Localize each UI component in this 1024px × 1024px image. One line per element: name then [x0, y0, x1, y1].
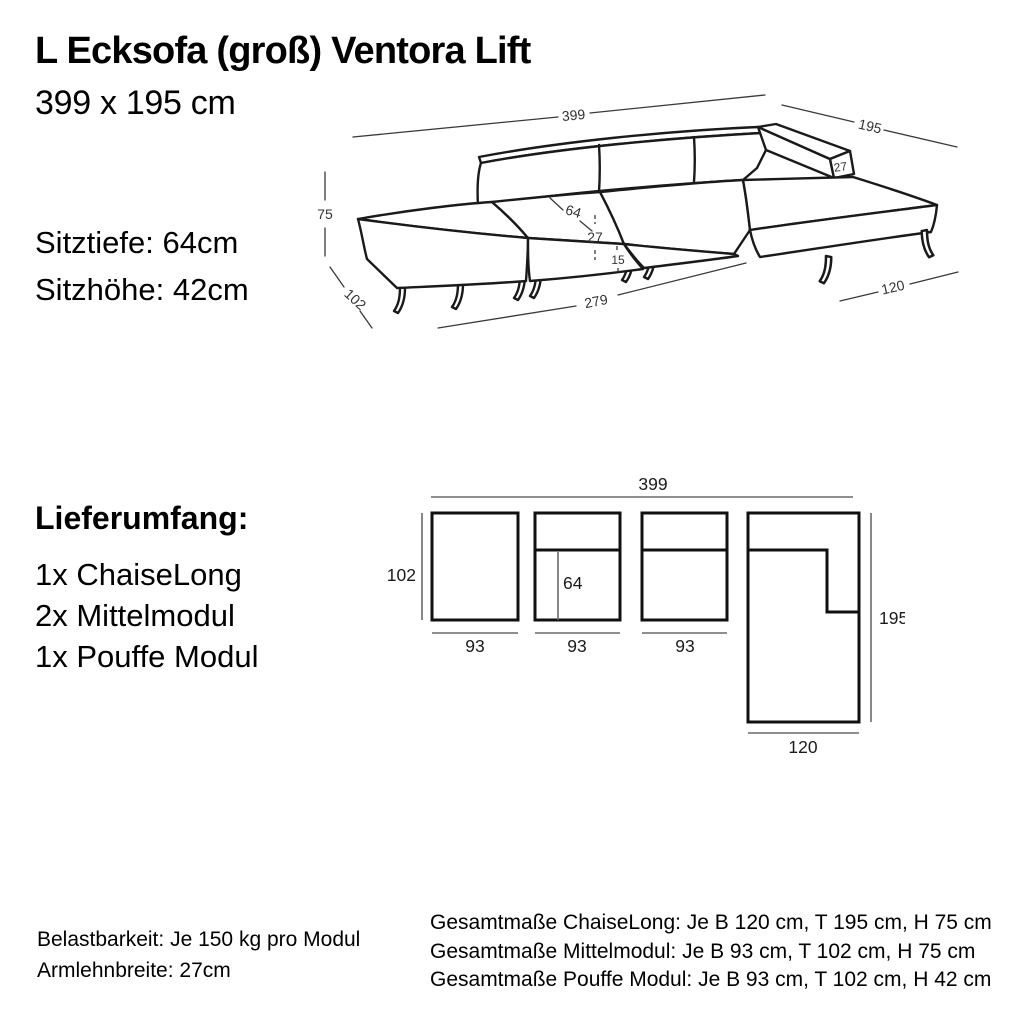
backrest-divider-line: [599, 145, 600, 192]
sofa-leg: [820, 256, 832, 283]
plan-dim-module-width-label: 93: [567, 636, 586, 656]
page-title: L Ecksofa (groß) Ventora Lift: [35, 30, 531, 74]
footer-load-notes: Belastbarkeit: Je 150 kg pro Modul Armle…: [37, 924, 360, 986]
sofa-leg: [394, 287, 405, 313]
footer-dim-pouffe: Gesamtmaße Pouffe Modul: Je B 93 cm, T 1…: [430, 966, 992, 995]
footer-load-capacity: Belastbarkeit: Je 150 kg pro Modul: [37, 924, 360, 955]
backrest-divider-line: [694, 137, 695, 182]
plan-module-mittel-2: [642, 513, 727, 620]
dim-modules-width-label: 279: [583, 291, 609, 311]
dim-leg-height-label: 15: [611, 253, 625, 267]
dim-module-depth-label: 102: [341, 286, 369, 314]
dim-total-width-label: 399: [561, 106, 586, 124]
delivery-item: 2x Mittelmodul: [35, 595, 258, 636]
plan-dim-module-width-label: 93: [465, 636, 484, 656]
delivery-heading: Lieferumfang:: [35, 500, 258, 537]
plan-dim-module-depth-label: 102: [387, 565, 416, 585]
delivery-list: 1x ChaiseLong 2x Mittelmodul 1x Pouffe M…: [35, 554, 258, 677]
plan-module-chaise: [748, 513, 859, 722]
spec-seat-height: Sitzhöhe: 42cm: [35, 266, 249, 313]
plan-module-mittel-1: [535, 513, 620, 620]
dim-chaise-width-label: 120: [880, 277, 907, 298]
spec-seat-depth: Sitztiefe: 64cm: [35, 219, 249, 266]
dim-armrest-width-label: 27: [833, 159, 848, 175]
delivery-contents: Lieferumfang: 1x ChaiseLong 2x Mittelmod…: [35, 500, 258, 677]
plan-seat-depth-label: 64: [563, 573, 583, 593]
footer-armrest-width: Armlehnbreite: 27cm: [37, 955, 360, 986]
plan-module-chaise-inner-line: [748, 550, 859, 612]
sofa-isometric-drawing: 27 399 195 75 102 64: [310, 88, 975, 345]
dim-seat-height-label: 27: [587, 229, 603, 245]
dim-height-label: 75: [317, 206, 333, 222]
sofa-leg: [922, 230, 934, 257]
seat-specs: Sitztiefe: 64cm Sitzhöhe: 42cm: [35, 219, 249, 313]
footer-dim-chaiselong: Gesamtmaße ChaiseLong: Je B 120 cm, T 19…: [430, 909, 992, 938]
dim-total-depth-label: 195: [857, 116, 884, 137]
plan-dim-chaise-width-label: 120: [788, 737, 817, 757]
delivery-item: 1x ChaiseLong: [35, 554, 258, 595]
plan-dim-total-width-label: 399: [638, 474, 667, 494]
plan-dim-module-width-label: 93: [675, 636, 694, 656]
plan-dim-chaise-depth-label: 195: [879, 608, 905, 628]
plan-module-pouffe: [432, 513, 518, 620]
footer-dim-mittelmodul: Gesamtmaße Mittelmodul: Je B 93 cm, T 10…: [430, 938, 992, 967]
module-plan-drawing: 399 64 102 93 93 93 195 120: [385, 470, 905, 770]
footer-overall-dimensions: Gesamtmaße ChaiseLong: Je B 120 cm, T 19…: [430, 909, 992, 995]
delivery-item: 1x Pouffe Modul: [35, 636, 258, 677]
product-dimension-sheet: L Ecksofa (groß) Ventora Lift 399 x 195 …: [0, 0, 1024, 1024]
sofa-leg: [452, 283, 463, 309]
